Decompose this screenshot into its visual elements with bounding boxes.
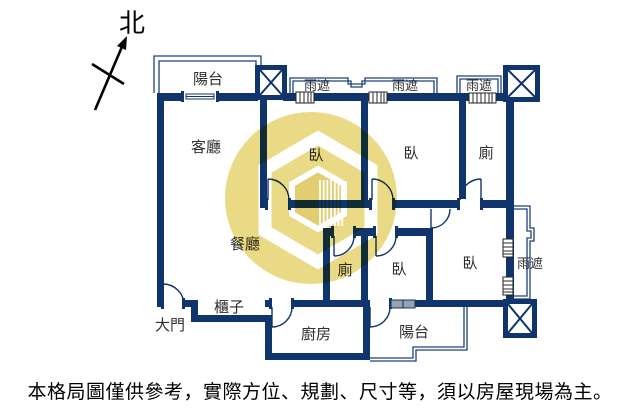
room-label-balcony-bottom: 陽台 <box>399 323 429 341</box>
floor-plan-drawing: 客廳 臥 臥 廁 餐廳 廁 臥 臥 雨遮 雨遮 雨遮 雨遮 陽台 陽台 大門 櫃… <box>0 0 640 409</box>
room-label-rain-1: 雨遮 <box>304 78 330 94</box>
north-arrow <box>92 36 127 110</box>
room-label-main-door: 大門 <box>155 316 185 334</box>
room-label-rain-right: 雨遮 <box>517 256 543 272</box>
shaft-box-bottom-right <box>503 299 537 338</box>
room-label-balcony-top: 陽台 <box>193 70 223 88</box>
room-label-cabinet: 櫃子 <box>214 298 244 316</box>
room-label-bedroom-4: 臥 <box>462 254 477 272</box>
room-label-bedroom-3: 臥 <box>391 260 406 278</box>
floor-plan-page: 客廳 臥 臥 廁 餐廳 廁 臥 臥 雨遮 雨遮 雨遮 雨遮 陽台 陽台 大門 櫃… <box>0 0 640 409</box>
disclaimer-text: 本格局圖僅供參考，實際方位、規劃、尺寸等，須以房屋現場為主。 <box>0 377 640 404</box>
shaft-box-top-left <box>255 65 287 100</box>
shaft-box-top-right <box>503 65 540 102</box>
room-label-rain-3: 雨遮 <box>466 78 492 94</box>
room-label-bedroom-2: 臥 <box>403 144 418 162</box>
room-label-kitchen: 廚房 <box>301 325 331 343</box>
room-label-living: 客廳 <box>191 138 221 156</box>
living-room-window-icon <box>186 94 214 99</box>
room-label-rain-2: 雨遮 <box>392 78 418 94</box>
north-label: 北 <box>119 3 145 40</box>
room-label-bath-top: 廁 <box>478 144 493 162</box>
gray-window-icon <box>391 300 415 308</box>
watermark-logo <box>225 112 397 284</box>
rain-shield-right-outline <box>514 206 534 299</box>
